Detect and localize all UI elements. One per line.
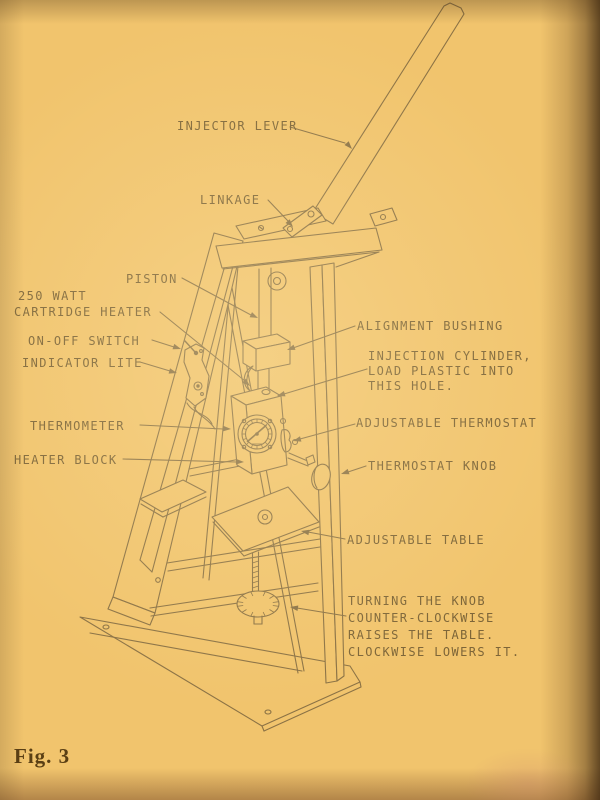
label-indicator-lite: INDICATOR LITE (22, 356, 143, 370)
figure-caption: Fig. 3 (14, 744, 70, 769)
machine-diagram: INJECTOR LEVER LINKAGE PISTON 250 WATT C… (0, 0, 600, 800)
label-injection-cylinder-line1: INJECTION CYLINDER, (368, 349, 532, 363)
elevation-screw (253, 552, 259, 593)
label-thermometer: THERMOMETER (30, 419, 125, 433)
leader-indicator-lite (140, 362, 170, 371)
star-knob (237, 591, 279, 624)
arrow-injection-cylinder (277, 391, 286, 396)
arrow-thermostat-knob (341, 469, 350, 474)
label-knob-note-line1: TURNING THE KNOB (348, 594, 486, 608)
alignment-bushing-block (243, 334, 290, 371)
arrow-piston (250, 312, 258, 318)
label-linkage: LINKAGE (200, 193, 260, 207)
callout-labels: INJECTOR LEVER LINKAGE PISTON 250 WATT C… (14, 119, 537, 659)
label-piston: PISTON (126, 272, 178, 286)
label-cartridge-heater-line1: 250 WATT (18, 289, 87, 303)
label-knob-note-line4: CLOCKWISE LOWERS IT. (348, 645, 521, 659)
label-knob-note-line2: COUNTER-CLOCKWISE (348, 611, 495, 625)
label-on-off-switch: ON-OFF SWITCH (28, 334, 140, 348)
thermometer-dial (238, 415, 276, 453)
label-injector-lever: INJECTOR LEVER (177, 119, 298, 133)
base-plate (80, 617, 361, 731)
arrow-on-off-switch (173, 344, 182, 349)
label-cartridge-heater-line2: CARTRIDGE HEATER (14, 305, 152, 319)
label-adjustable-thermostat: ADJUSTABLE THERMOSTAT (356, 416, 537, 430)
leader-thermostat-knob (348, 466, 366, 472)
arrow-adjustable-table (301, 530, 309, 536)
arrow-injector-lever (345, 141, 353, 149)
label-knob-note-line3: RAISES THE TABLE. (348, 628, 495, 642)
label-thermostat-knob: THERMOSTAT KNOB (368, 459, 497, 473)
label-heater-block: HEATER BLOCK (14, 453, 118, 467)
arrow-knob-note (290, 606, 298, 612)
label-injection-cylinder-line2: LOAD PLASTIC INTO (368, 364, 515, 378)
label-adjustable-table: ADJUSTABLE TABLE (347, 533, 485, 547)
label-injection-cylinder-line3: THIS HOLE. (368, 379, 454, 393)
leader-on-off-switch (152, 340, 174, 347)
arrow-thermometer (223, 426, 231, 432)
leader-injector-lever (290, 127, 345, 143)
injector-lever (313, 3, 464, 224)
arrow-adjustable-thermostat (293, 436, 301, 441)
manual-page-photo: INJECTOR LEVER LINKAGE PISTON 250 WATT C… (0, 0, 600, 800)
label-alignment-bushing: ALIGNMENT BUSHING (357, 319, 504, 333)
